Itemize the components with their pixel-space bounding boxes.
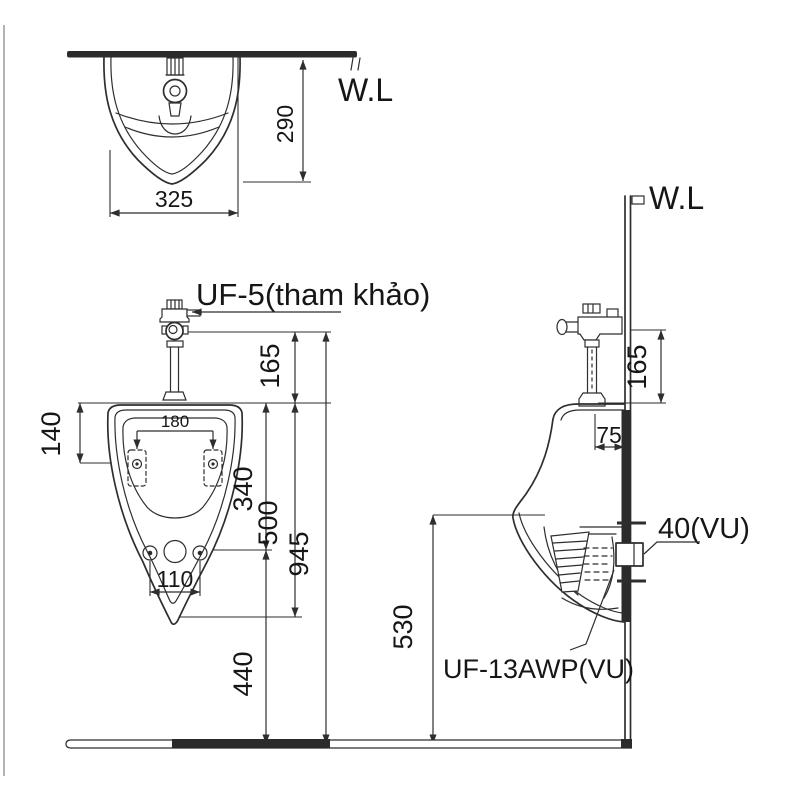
valve-handle-arm <box>566 322 578 332</box>
wall-top-tab <box>632 196 644 204</box>
trap-bottom <box>562 598 618 609</box>
dim-bolt-spacing: 110 <box>157 566 194 592</box>
pipe-flange <box>163 392 186 400</box>
spud-arc <box>159 116 191 134</box>
flush-pipe <box>171 347 179 392</box>
valve-collar <box>167 341 183 347</box>
valve-neck-side <box>585 340 599 347</box>
outlet-pipe-label: 40(VU) <box>658 513 750 545</box>
dim-rim-to-lip: 500 <box>253 500 283 545</box>
wall-break-ticks <box>351 58 360 70</box>
valve-cap-side <box>583 304 600 313</box>
urinal-back-against-wall <box>622 410 631 622</box>
valve-handle-cap-side <box>557 320 567 335</box>
valve-body-side <box>578 317 622 340</box>
valve-reference-label: UF-5(tham khảo) <box>196 277 430 312</box>
bowl-contour-line-2 <box>125 127 219 137</box>
water-line-label-top: W.L <box>338 72 393 108</box>
flush-valve-side <box>557 304 622 406</box>
floor-line <box>66 739 632 749</box>
flush-valve-front <box>160 300 200 400</box>
dim-valve-height-side: 165 <box>622 344 652 389</box>
front-view: UF-5(tham khảo) 180 <box>36 277 430 744</box>
floor-dark-segment <box>172 739 330 749</box>
hanger-hole-left-dot <box>135 462 138 465</box>
hanger-hole-right-dot <box>211 462 214 465</box>
urinal-side-rim-inner <box>561 410 624 420</box>
water-level-dashes <box>584 548 612 580</box>
floor-wall-joint <box>621 739 632 749</box>
trap-model-label: UF-13AWP(VU) <box>443 654 634 684</box>
valve-ball <box>166 323 183 340</box>
urinal-installation-diagram: W.L 325 290 <box>0 0 800 800</box>
dim-overall-height: 945 <box>284 531 314 576</box>
dim-valve-offset: 75 <box>596 422 622 448</box>
top-view: W.L 325 290 <box>67 51 393 217</box>
dim-hanger-drop: 140 <box>36 411 66 456</box>
bolt-hole-left-dot <box>148 551 153 556</box>
wall-section-bar <box>67 51 357 58</box>
spreader-fitting-top <box>159 58 191 134</box>
dim-outlet-to-floor: 440 <box>228 651 258 696</box>
technical-drawing-page: W.L 325 290 <box>0 0 800 800</box>
bolt-hole-right-dot <box>198 551 203 556</box>
spreader-ring <box>164 80 187 103</box>
valve-body <box>160 309 189 322</box>
dim-hanger-spacing: 180 <box>161 412 189 431</box>
floor-bar <box>66 740 631 748</box>
trap-weir <box>604 537 614 598</box>
side-view: W.L <box>388 180 750 746</box>
water-line-label-side: W.L <box>649 180 704 216</box>
outlet-pipe-through-wall <box>616 543 643 566</box>
urinal-top-outline <box>104 57 240 184</box>
dim-width: 325 <box>155 186 193 212</box>
dim-lip-to-floor: 530 <box>388 604 418 649</box>
spreader-collar <box>169 103 181 116</box>
dim-valve-height: 165 <box>255 343 285 388</box>
dim-depth: 290 <box>272 105 298 143</box>
